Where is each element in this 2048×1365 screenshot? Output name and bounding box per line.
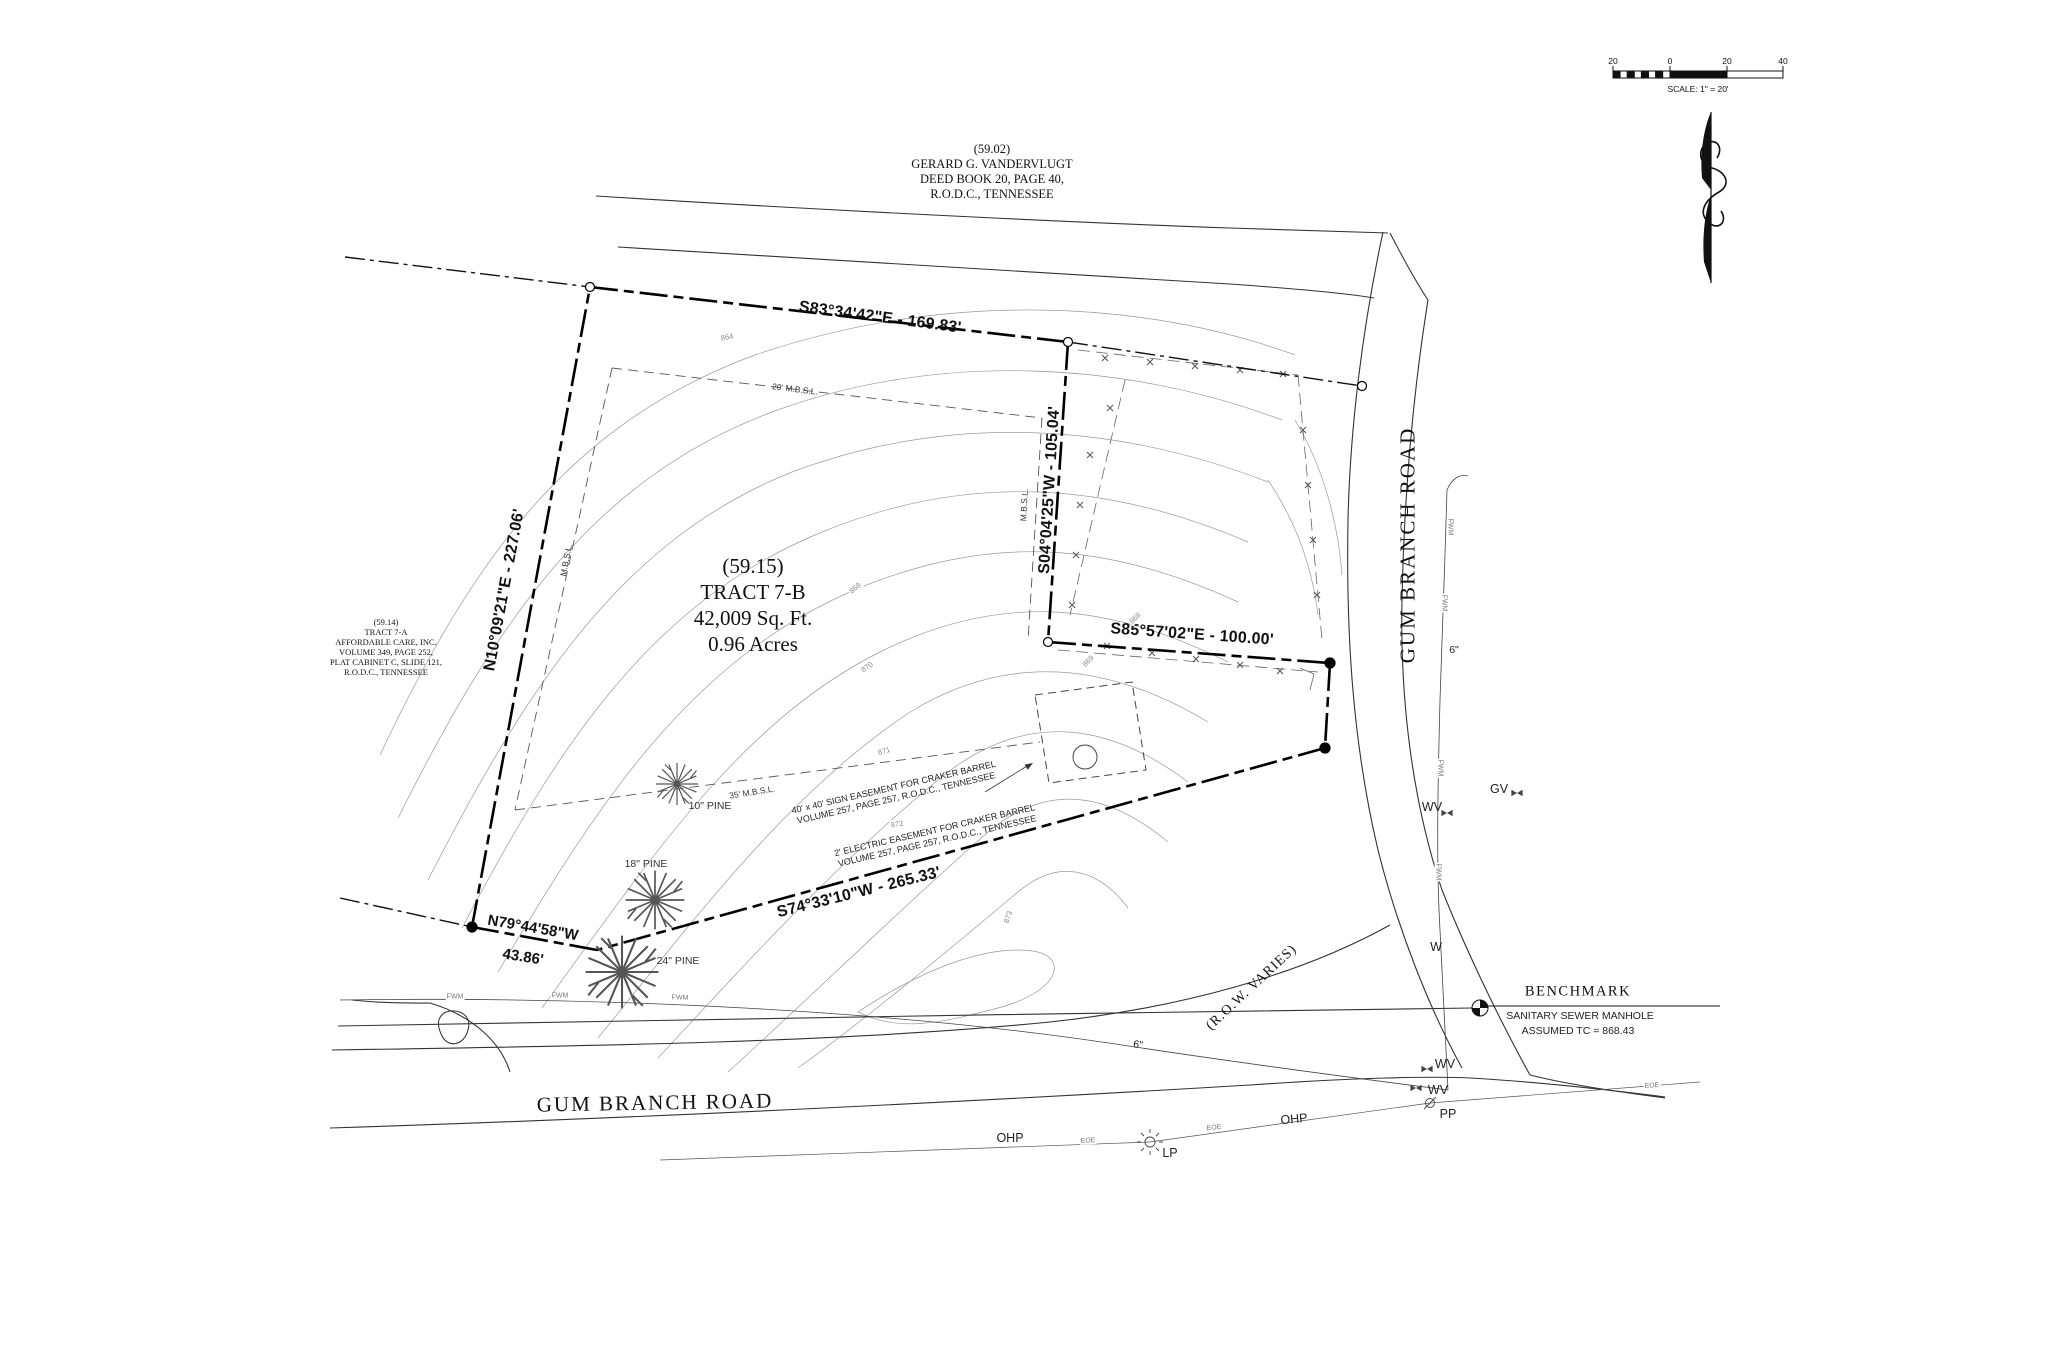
water-main-south (340, 999, 1448, 1090)
pine-10-icon (656, 763, 698, 805)
pine-10-label: 10" PINE (689, 800, 732, 812)
tract-area-acres: 0.96 Acres (694, 631, 812, 657)
benchmark-line2: ASSUMED TC = 868.43 (1522, 1025, 1635, 1037)
north-arrow-icon (1701, 112, 1726, 283)
wv-label-2: WV (1428, 1083, 1448, 1097)
pine-24-label: 24" PINE (657, 955, 700, 967)
fwm-tag-1: FWM (1447, 518, 1454, 537)
wv-label-1: WV (1435, 1057, 1455, 1071)
parcel-west-plat: PLAT CABINET C, SLIDE 121, (330, 657, 442, 667)
adjacent-parcel-west-block: (59.14) TRACT 7-A AFFORDABLE CARE, INC. … (330, 617, 442, 677)
pine-tree-symbols (586, 763, 698, 1008)
fwm-tag-4: FWM (1435, 863, 1442, 882)
w-label: W (1430, 940, 1442, 954)
road-edges (330, 196, 1665, 1128)
water-size-south-label: 6" (1132, 1038, 1143, 1051)
subject-tract-block: (59.15) TRACT 7-B 42,009 Sq. Ft. 0.96 Ac… (694, 553, 812, 657)
scale-tick-20l: 20 (1608, 56, 1617, 66)
fwm-tag-5: FWM (446, 994, 465, 1001)
water-size-east-label: 6" (1449, 644, 1459, 656)
ohp-label-1: OHP (996, 1131, 1023, 1145)
eoe-tag-3: EOE (1643, 1082, 1660, 1090)
pine-18-icon (626, 871, 685, 930)
scale-bar (1613, 66, 1783, 78)
scale-tick-40: 40 (1778, 56, 1787, 66)
pp-label: PP (1440, 1107, 1457, 1121)
overhead-power-line (660, 1082, 1700, 1160)
adjacent-parcel-north-block: (59.02) GERARD G. VANDERVLUGT DEED BOOK … (911, 142, 1072, 202)
ohp-label-2: OHP (1280, 1111, 1308, 1127)
parcel-north-registry: R.O.D.C., TENNESSEE (911, 187, 1072, 202)
fwm-tag-7: FWM (671, 994, 690, 1002)
parcel-north-id: (59.02) (911, 142, 1072, 157)
tract-area-sqft: 42,009 Sq. Ft. (694, 605, 812, 631)
scale-tick-0: 0 (1668, 56, 1673, 66)
wv-label-3: WV (1422, 800, 1442, 814)
scale-label: SCALE: 1" = 20' (1667, 84, 1728, 94)
parcel-north-owner: GERARD G. VANDERVLUGT (911, 157, 1072, 172)
fwm-tag-3: FWM (1437, 759, 1444, 778)
sign-easement-square (1035, 682, 1146, 783)
eoe-tag-1: EOE (1079, 1137, 1096, 1145)
parcel-north-deed: DEED BOOK 20, PAGE 40, (911, 172, 1072, 187)
water-main-east (1438, 476, 1468, 1090)
parcel-west-tract: TRACT 7-A (330, 627, 442, 637)
benchmark-line1: SANITARY SEWER MANHOLE (1506, 1010, 1654, 1022)
scale-tick-20r: 20 (1722, 56, 1731, 66)
gv-label: GV (1490, 782, 1508, 796)
valve-symbols (1410, 790, 1522, 1091)
pine-24-icon (586, 936, 659, 1009)
setback-side-east-label: M.B.S.L. (1018, 488, 1030, 521)
fwm-tag-6: FWM (551, 993, 570, 1000)
road-name-east: GUM BRANCH ROAD (1396, 427, 1421, 664)
tract-name: TRACT 7-B (694, 579, 812, 605)
parcel-west-id: (59.14) (330, 617, 442, 627)
benchmark-title: BENCHMARK (1525, 984, 1631, 1001)
fwm-tag-2: FWM (1441, 594, 1448, 613)
parcel-west-owner: AFFORDABLE CARE, INC. (330, 637, 442, 647)
road-name-south: GUM BRANCH ROAD (537, 1088, 774, 1117)
plat-linework (0, 0, 2048, 1365)
power-pole-symbol (1424, 1097, 1436, 1109)
parcel-west-volume: VOLUME 349, PAGE 252, (330, 647, 442, 657)
pine-18-label: 18" PINE (625, 858, 668, 870)
lp-label: LP (1162, 1146, 1177, 1160)
parcel-west-registry: R.O.D.C., TENNESSEE (330, 667, 442, 677)
tract-id: (59.15) (694, 553, 812, 579)
survey-plat-sheet: (59.02) GERARD G. VANDERVLUGT DEED BOOK … (0, 0, 2048, 1365)
